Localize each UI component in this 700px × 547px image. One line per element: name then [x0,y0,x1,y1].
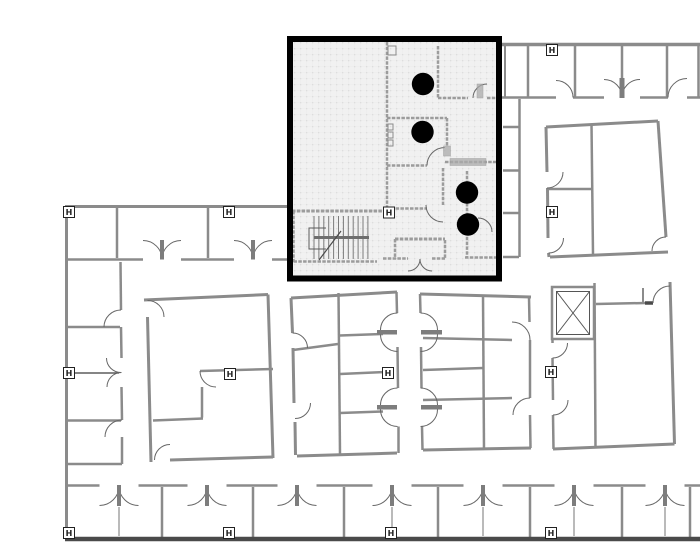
wall-segment [420,294,421,313]
wall-segment [670,282,675,444]
wall-segment [291,298,293,333]
door-arc [381,388,398,405]
door-arc [381,410,398,427]
h-marker-label: H [549,46,556,55]
h-marker-label: H [388,529,395,538]
h-marker-label: H [549,208,556,217]
door-post [620,78,625,98]
marker-dot[interactable] [457,213,479,235]
door-arc [668,79,687,98]
h-marker-label: H [386,209,393,218]
door-arc [234,241,253,260]
door-arc [381,313,398,330]
door-post [377,330,397,335]
door-post [572,485,576,506]
wall-segment [297,453,397,456]
door-arc [381,335,398,352]
door-arc [553,343,568,358]
door-post [205,485,209,506]
door-post [295,485,299,506]
door-leaf-hatch [477,84,483,98]
door-arc [253,241,272,260]
door-arc [553,400,568,415]
wall-segment [553,415,554,449]
door-post [421,330,442,335]
door-post [377,405,397,410]
door-arc [665,486,685,506]
door-arc [293,333,308,348]
h-marker-label: H [66,529,73,538]
h-marker-label: H [548,529,555,538]
door-arc [483,486,503,506]
door-arc [155,445,171,461]
wall-segment [148,317,152,462]
door-arc [143,241,162,260]
wall-segment [291,292,397,298]
door-arc [653,286,670,303]
door-post [160,240,164,260]
wall-segment [553,358,554,400]
door-arc [107,358,122,373]
wall-segment [340,412,383,414]
wall-segment [293,344,338,350]
marker-dot[interactable] [412,73,434,95]
door-post [481,485,485,506]
h-marker-label: H [66,208,73,217]
door-arc [622,80,640,98]
wall-segment [423,368,483,370]
wall-segment [200,369,273,371]
h-marker-label: H [385,369,392,378]
wall-segment [423,448,531,450]
door-post [663,485,667,506]
door-arc [555,486,575,506]
door-arc [207,486,227,506]
door-arc [105,420,122,437]
wall-segment [170,457,273,460]
wall-segment [596,303,645,304]
door-arc [421,313,438,330]
door-arc [464,486,484,506]
wall-segment [144,295,268,301]
wall-segment [546,127,547,172]
door-arc [188,486,208,506]
wall-segment [340,334,383,336]
door-arc [104,310,121,327]
door-arc [646,486,666,506]
h-marker-label: H [227,370,234,379]
wall-segment [483,295,484,449]
door-arc [107,373,122,388]
door-arc [278,486,298,506]
door-arc [513,398,530,415]
door-arc [604,80,622,98]
door-arc [549,238,564,253]
door-arc [100,486,120,506]
door-arc [421,410,438,427]
wall-segment [295,422,296,455]
wall-segment [421,347,422,388]
door-arc [574,486,594,506]
wall-segment [121,327,122,358]
door-arc [547,172,563,188]
wall-segment [122,387,123,420]
wall-segment [422,427,423,451]
floor-plan: HHHHHHHHHHHHH [0,0,700,547]
wall-segment [268,295,273,459]
door-leaf-hatch [450,159,486,166]
wall-segment [420,294,531,297]
door-arc [119,486,139,506]
door-post [251,240,255,260]
door-arc [652,237,666,251]
door-arc [148,301,165,318]
wall-segment [398,347,399,388]
door-leaf-hatch [444,146,451,156]
wall-segment [658,121,666,237]
door-arc [556,81,573,98]
marker-dot[interactable] [456,181,478,203]
wall-segment [153,419,203,421]
wall-segment [339,293,341,454]
door-arc [162,241,181,260]
wall-segment [293,348,294,403]
door-post [421,405,442,410]
h-marker-label: H [226,208,233,217]
door-post [390,485,394,506]
wall-segment [529,297,530,322]
wall-segment [340,372,386,374]
door-arc [200,371,216,387]
wall-segment [549,253,550,257]
wall-segment [546,121,658,127]
floor-plan-svg: HHHHHHHHHHHHH [0,0,700,547]
wall-segment [553,444,675,449]
wall-segment [530,415,531,448]
door-arc [373,486,393,506]
door-arc [421,388,438,405]
door-arc [295,403,311,419]
wall-segment [397,292,398,313]
h-marker-label: H [66,369,73,378]
h-marker-label: H [548,368,555,377]
wall-segment [592,124,594,254]
marker-dot[interactable] [411,121,433,143]
door-arc [392,486,412,506]
wall-segment [550,252,668,257]
door-post [117,485,121,506]
door-arc [512,322,530,340]
door-arc [297,486,317,506]
h-marker-label: H [226,529,233,538]
wall-segment [121,262,122,310]
